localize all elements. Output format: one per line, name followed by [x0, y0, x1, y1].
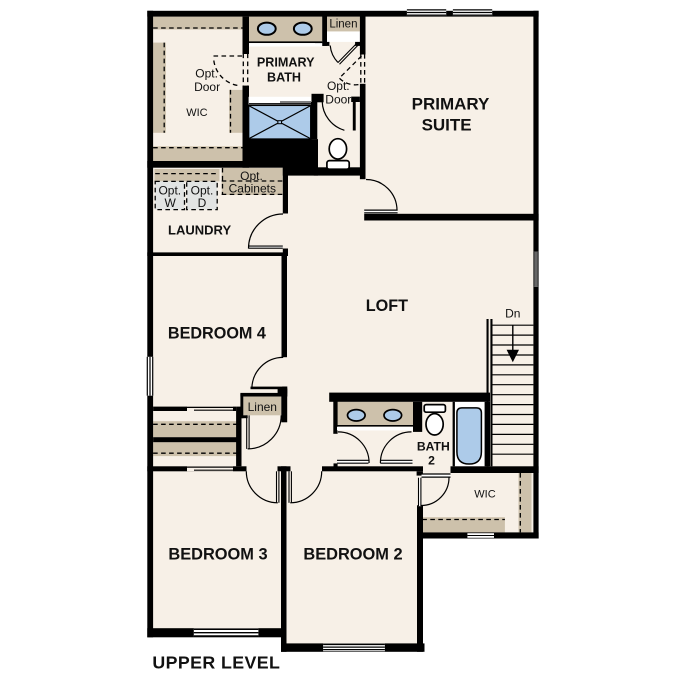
svg-text:LAUNDRY: LAUNDRY — [168, 223, 231, 238]
svg-text:W: W — [165, 196, 177, 210]
svg-text:Door: Door — [194, 80, 220, 94]
svg-text:D: D — [198, 196, 207, 210]
svg-text:WIC: WIC — [186, 107, 207, 119]
svg-text:BEDROOM 3: BEDROOM 3 — [168, 546, 267, 564]
svg-text:WIC: WIC — [474, 489, 495, 501]
svg-text:Opt.: Opt. — [327, 79, 350, 93]
svg-text:UPPER LEVEL: UPPER LEVEL — [152, 653, 280, 673]
svg-text:BEDROOM 4: BEDROOM 4 — [168, 325, 266, 343]
svg-text:Opt.: Opt. — [195, 67, 218, 81]
svg-text:PRIMARY: PRIMARY — [412, 95, 490, 114]
svg-text:SUITE: SUITE — [422, 115, 472, 134]
svg-text:LOFT: LOFT — [366, 297, 408, 315]
svg-text:BATH: BATH — [417, 439, 450, 453]
svg-text:Cabinets: Cabinets — [229, 182, 276, 196]
svg-text:Linen: Linen — [248, 400, 277, 414]
svg-text:PRIMARY: PRIMARY — [257, 56, 315, 70]
svg-text:BEDROOM 2: BEDROOM 2 — [303, 546, 402, 564]
svg-text:BATH: BATH — [267, 71, 301, 85]
svg-text:2: 2 — [428, 453, 435, 467]
svg-text:Linen: Linen — [329, 18, 357, 30]
svg-text:Dn: Dn — [505, 307, 520, 321]
svg-text:Door: Door — [325, 93, 351, 107]
